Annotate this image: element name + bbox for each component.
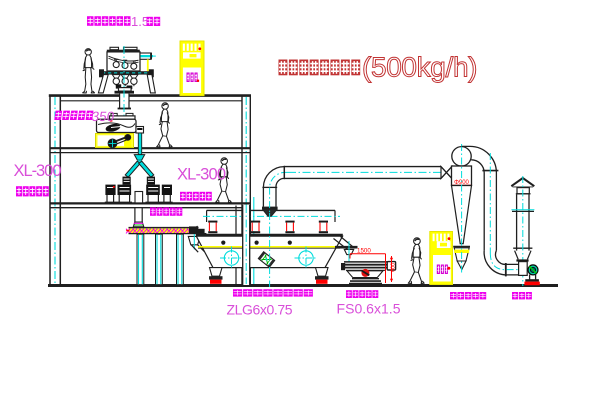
svg-text:1500: 1500 [357, 248, 371, 255]
svg-text:XL-300: XL-300 [177, 166, 226, 184]
svg-text:1.5: 1.5 [131, 14, 149, 29]
svg-text:XL-300: XL-300 [14, 162, 62, 180]
svg-text:(500kg/h): (500kg/h) [362, 52, 478, 83]
svg-text:600: 600 [391, 263, 397, 272]
svg-text:ZLG6x0.75: ZLG6x0.75 [227, 302, 293, 318]
svg-text:350: 350 [91, 109, 116, 124]
svg-text:FS0.6x1.5: FS0.6x1.5 [337, 301, 401, 317]
